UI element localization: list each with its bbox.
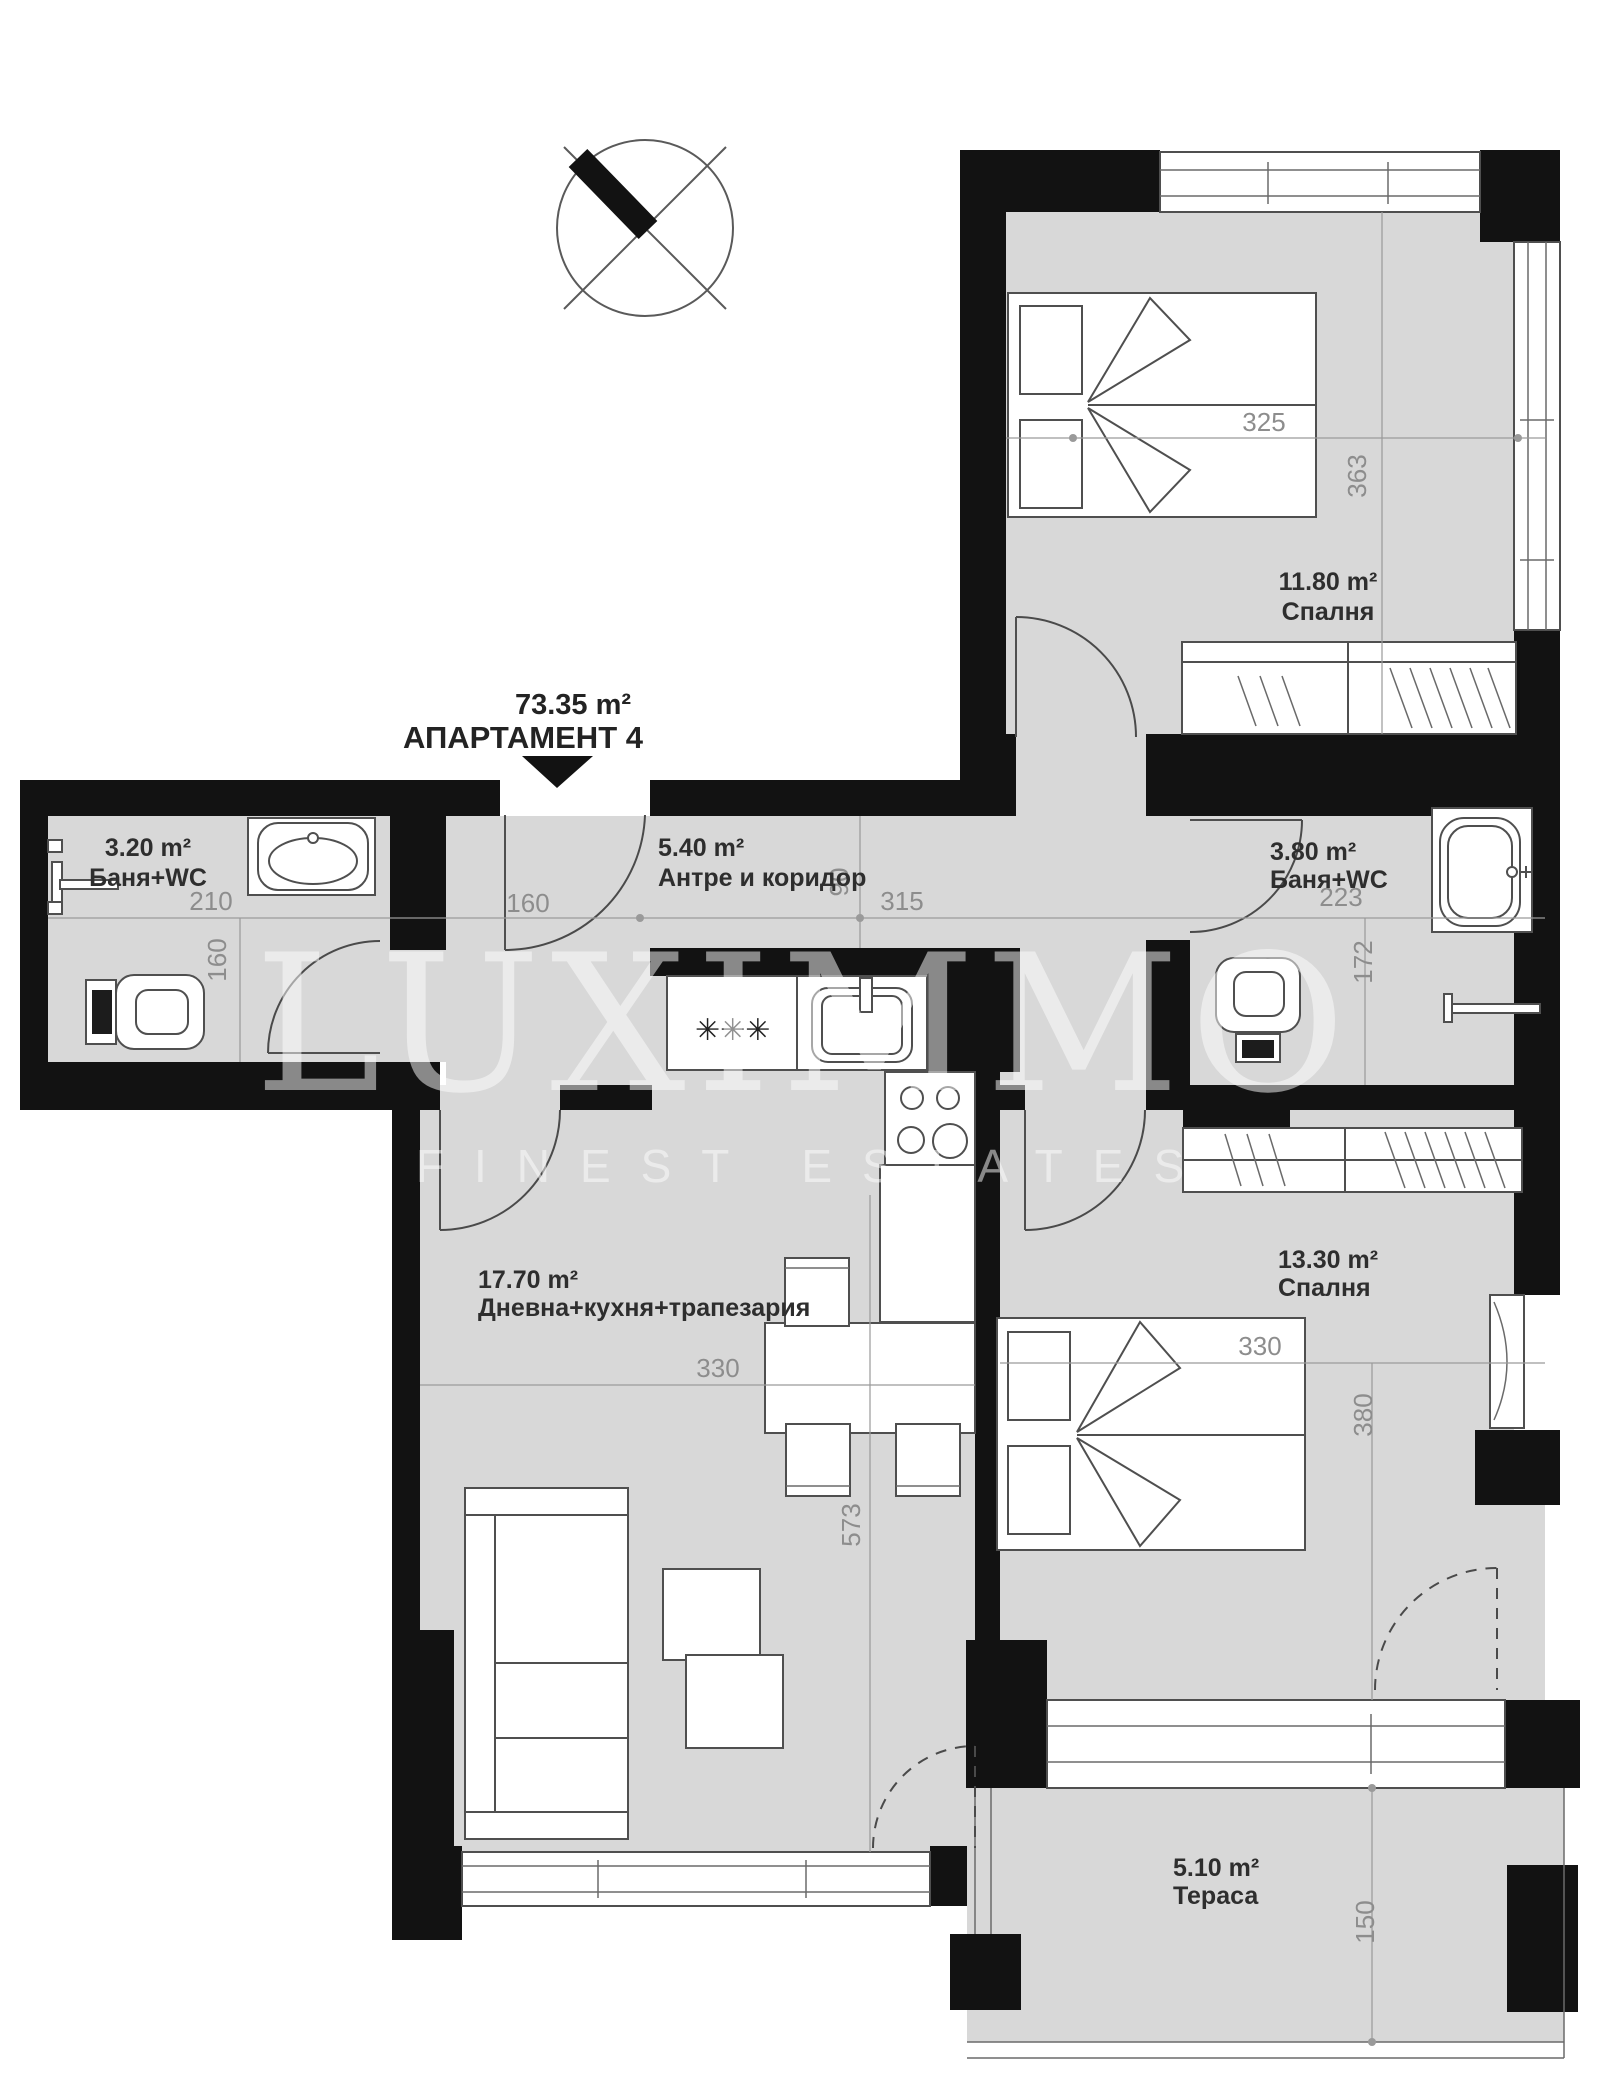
bed-2-pillow <box>1008 1446 1070 1534</box>
room-bedroom-2-floor-edge <box>1514 1505 1545 1700</box>
floor-plan-page: ✳✳✳ <box>0 0 1600 2074</box>
bedroom-2-terrace-window <box>1047 1700 1505 1788</box>
dim-living-width: 330 <box>696 1353 739 1383</box>
coffee-table <box>663 1569 760 1660</box>
bathtub-sink-2 <box>1432 808 1532 932</box>
bedroom-1-name: Спалня <box>1282 598 1375 626</box>
dim-hall-width: 315 <box>880 886 923 916</box>
dim-living-height: 573 <box>836 1503 866 1546</box>
bed-2-pillow <box>1008 1332 1070 1420</box>
sofa <box>465 1488 628 1839</box>
bedroom-1-area: 11.80 m² <box>1279 568 1378 596</box>
watermark: LUXIMMO FINEST ESTATES <box>254 914 1355 1192</box>
dining-chair <box>896 1424 960 1496</box>
terrace-name: Тераса <box>1173 1882 1259 1910</box>
bed-1-pillow <box>1020 306 1082 394</box>
dining-chair <box>786 1424 850 1496</box>
bedroom-2-name: Спалня <box>1278 1274 1371 1302</box>
dim-bedroom2-height: 380 <box>1348 1393 1378 1436</box>
bathroom-1-name: Баня+WC <box>89 864 207 892</box>
apartment-title: АПАРТАМЕНТ 4 <box>403 720 644 755</box>
watermark-brand: LUXIMMO <box>254 914 1355 1135</box>
room-terrace-floor <box>967 1788 1564 2042</box>
dim-bedroom1-height: 363 <box>1342 454 1372 497</box>
dim-bath1-height: 160 <box>202 938 232 981</box>
dim-terrace-depth: 150 <box>1350 1900 1380 1943</box>
bathroom-2-area: 3.80 m² <box>1270 838 1356 866</box>
hallway-name: Антре и коридор <box>658 864 866 892</box>
bathroom-1-area: 3.20 m² <box>105 834 191 862</box>
total-area-label: 73.35 m² <box>515 689 631 721</box>
bedroom-1-top-window <box>1160 152 1480 212</box>
living-name: Дневна+кухня+трапезария <box>478 1294 810 1322</box>
title-block: 73.35 m² АПАРТАМЕНТ 4 <box>403 689 644 788</box>
terrace-area: 5.10 m² <box>1173 1854 1259 1882</box>
toilet-1 <box>86 975 204 1049</box>
bathroom-2-name: Баня+WC <box>1270 866 1388 894</box>
entrance-opening <box>500 780 650 816</box>
watermark-tagline: FINEST ESTATES <box>416 1140 1214 1192</box>
bedroom-2-area: 13.30 m² <box>1278 1246 1378 1274</box>
living-room-window <box>462 1852 930 1906</box>
wardrobe-2 <box>1183 1128 1522 1192</box>
dresser <box>1490 1295 1524 1428</box>
hallway-area: 5.40 m² <box>658 834 744 862</box>
dim-bedroom2-width: 330 <box>1238 1331 1281 1361</box>
north-compass-icon <box>557 140 733 316</box>
living-area: 17.70 m² <box>478 1266 578 1294</box>
floor-plan-svg: ✳✳✳ <box>0 0 1600 2074</box>
bed-1-pillow <box>1020 420 1082 508</box>
dim-bedroom1-width: 325 <box>1242 407 1285 437</box>
coffee-table <box>686 1655 783 1748</box>
wardrobe-1 <box>1182 642 1516 734</box>
